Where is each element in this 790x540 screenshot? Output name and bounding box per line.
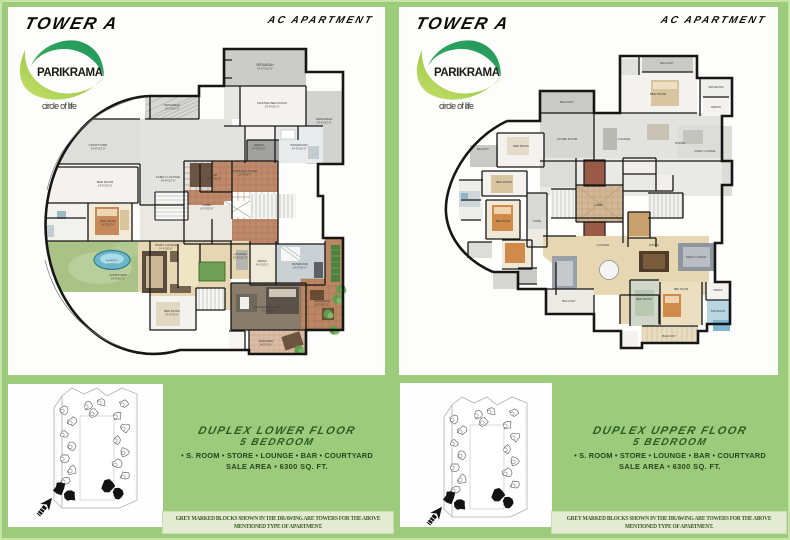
svg-text:VERANDAH: VERANDAH <box>164 103 181 107</box>
svg-text:14'-0"X12'-0": 14'-0"X12'-0" <box>165 313 179 316</box>
svg-text:14'-0"X12'-0": 14'-0"X12'-0" <box>159 247 173 250</box>
svg-text:AQUA BODY: AQUA BODY <box>106 259 118 262</box>
svg-text:14'-0"X12'-0": 14'-0"X12'-0" <box>260 344 273 346</box>
svg-text:14'-0"X12'-0": 14'-0"X12'-0" <box>207 176 222 180</box>
svg-text:BALCONY: BALCONY <box>477 148 489 151</box>
svg-text:BED ROOM: BED ROOM <box>513 144 529 148</box>
svg-text:LOUNGE: LOUNGE <box>597 243 610 247</box>
svg-text:14'-0"X12'-0": 14'-0"X12'-0" <box>233 255 248 259</box>
svg-text:14'-0"X12'-0": 14'-0"X12'-0" <box>292 146 307 150</box>
svg-text:14'-0"X12'-0": 14'-0"X12'-0" <box>200 207 214 210</box>
svg-text:14'-0"X12'-0": 14'-0"X12'-0" <box>317 120 332 124</box>
svg-text:VERANDAH: VERANDAH <box>259 339 274 343</box>
svg-text:STORE ROOM: STORE ROOM <box>557 137 578 141</box>
svg-text:BALCONY: BALCONY <box>562 299 576 303</box>
svg-text:LOBBY: LOBBY <box>202 203 211 207</box>
svg-text:BED ROOM: BED ROOM <box>650 92 667 96</box>
svg-text:MASTER BED ROOM: MASTER BED ROOM <box>257 101 287 105</box>
svg-text:14'-0"X12'-0": 14'-0"X12'-0" <box>161 178 176 182</box>
svg-text:BED ROOM: BED ROOM <box>100 219 116 223</box>
svg-text:DRESS: DRESS <box>714 288 723 292</box>
svg-text:VERANDAH: VERANDAH <box>256 63 274 67</box>
svg-text:BATHROOM: BATHROOM <box>290 143 308 147</box>
svg-text:ENTRANCE FOYER: ENTRANCE FOYER <box>233 169 257 173</box>
svg-text:BATHROOM: BATHROOM <box>709 85 724 89</box>
svg-text:COURTYARD: COURTYARD <box>109 273 126 277</box>
svg-text:COURTYARD: COURTYARD <box>89 143 109 147</box>
svg-text:BED ROOM: BED ROOM <box>674 287 688 291</box>
svg-text:FAMILY LOUNGE: FAMILY LOUNGE <box>695 149 716 153</box>
svg-text:14'-0"X12'-0": 14'-0"X12'-0" <box>257 66 273 70</box>
svg-text:BALCONY: BALCONY <box>662 334 676 338</box>
svg-text:14'-0"X12'-0": 14'-0"X12'-0" <box>293 266 307 269</box>
svg-text:14'-0"X12'-0": 14'-0"X12'-0" <box>252 147 266 150</box>
svg-text:FAMILY LOUNGE: FAMILY LOUNGE <box>155 243 177 247</box>
svg-text:BALCONY: BALCONY <box>660 61 674 65</box>
svg-text:BED ROOM: BED ROOM <box>97 180 114 184</box>
svg-text:14'-0"X12'-0": 14'-0"X12'-0" <box>261 309 275 312</box>
svg-text:14'-0"X12'-0": 14'-0"X12'-0" <box>315 303 329 306</box>
svg-text:DRESS: DRESS <box>711 105 721 109</box>
svg-text:BED ROOM: BED ROOM <box>496 219 510 223</box>
svg-text:14'-0"X12'-0": 14'-0"X12'-0" <box>91 146 106 150</box>
svg-text:FAMILY LOUNGE: FAMILY LOUNGE <box>686 256 706 259</box>
svg-text:DINING: DINING <box>675 141 686 145</box>
svg-text:DRESS: DRESS <box>258 259 267 263</box>
svg-text:FAMILY LOUNGE: FAMILY LOUNGE <box>156 175 180 179</box>
svg-text:BED ROOM: BED ROOM <box>164 309 180 313</box>
svg-text:BALCONY: BALCONY <box>560 100 574 104</box>
svg-text:DRESS: DRESS <box>254 143 264 147</box>
svg-text:14'-0"X12'-0": 14'-0"X12'-0" <box>165 106 180 110</box>
svg-text:LOUNGE: LOUNGE <box>234 252 247 256</box>
svg-text:STORE: STORE <box>533 220 542 223</box>
svg-text:DINING: DINING <box>649 243 659 247</box>
svg-text:VERANDAH: VERANDAH <box>316 117 333 121</box>
svg-text:BED ROOM: BED ROOM <box>496 180 512 184</box>
svg-text:VERANDAH: VERANDAH <box>314 299 330 303</box>
svg-text:14'-0"X12'-0": 14'-0"X12'-0" <box>265 104 280 108</box>
svg-text:LOBBY: LOBBY <box>594 203 603 207</box>
svg-text:14'-0"X12'-0": 14'-0"X12'-0" <box>107 263 117 265</box>
svg-text:BATHROOM: BATHROOM <box>711 310 725 313</box>
svg-text:BATHROOM: BATHROOM <box>292 262 309 266</box>
svg-text:14'-0"X12'-0": 14'-0"X12'-0" <box>98 183 113 187</box>
svg-text:14'-0"X12'-0": 14'-0"X12'-0" <box>111 277 125 280</box>
svg-text:BED ROOM: BED ROOM <box>636 297 652 301</box>
svg-text:LOUNGE: LOUNGE <box>618 137 631 141</box>
svg-text:14'-0"X12'-0": 14'-0"X12'-0" <box>239 174 252 176</box>
svg-text:BAR: BAR <box>211 173 218 177</box>
svg-text:MASTER BED ROOM: MASTER BED ROOM <box>254 305 282 309</box>
svg-text:14'-0"X12'-0": 14'-0"X12'-0" <box>256 264 269 266</box>
svg-text:14'-0"X12'-0": 14'-0"X12'-0" <box>101 223 115 226</box>
